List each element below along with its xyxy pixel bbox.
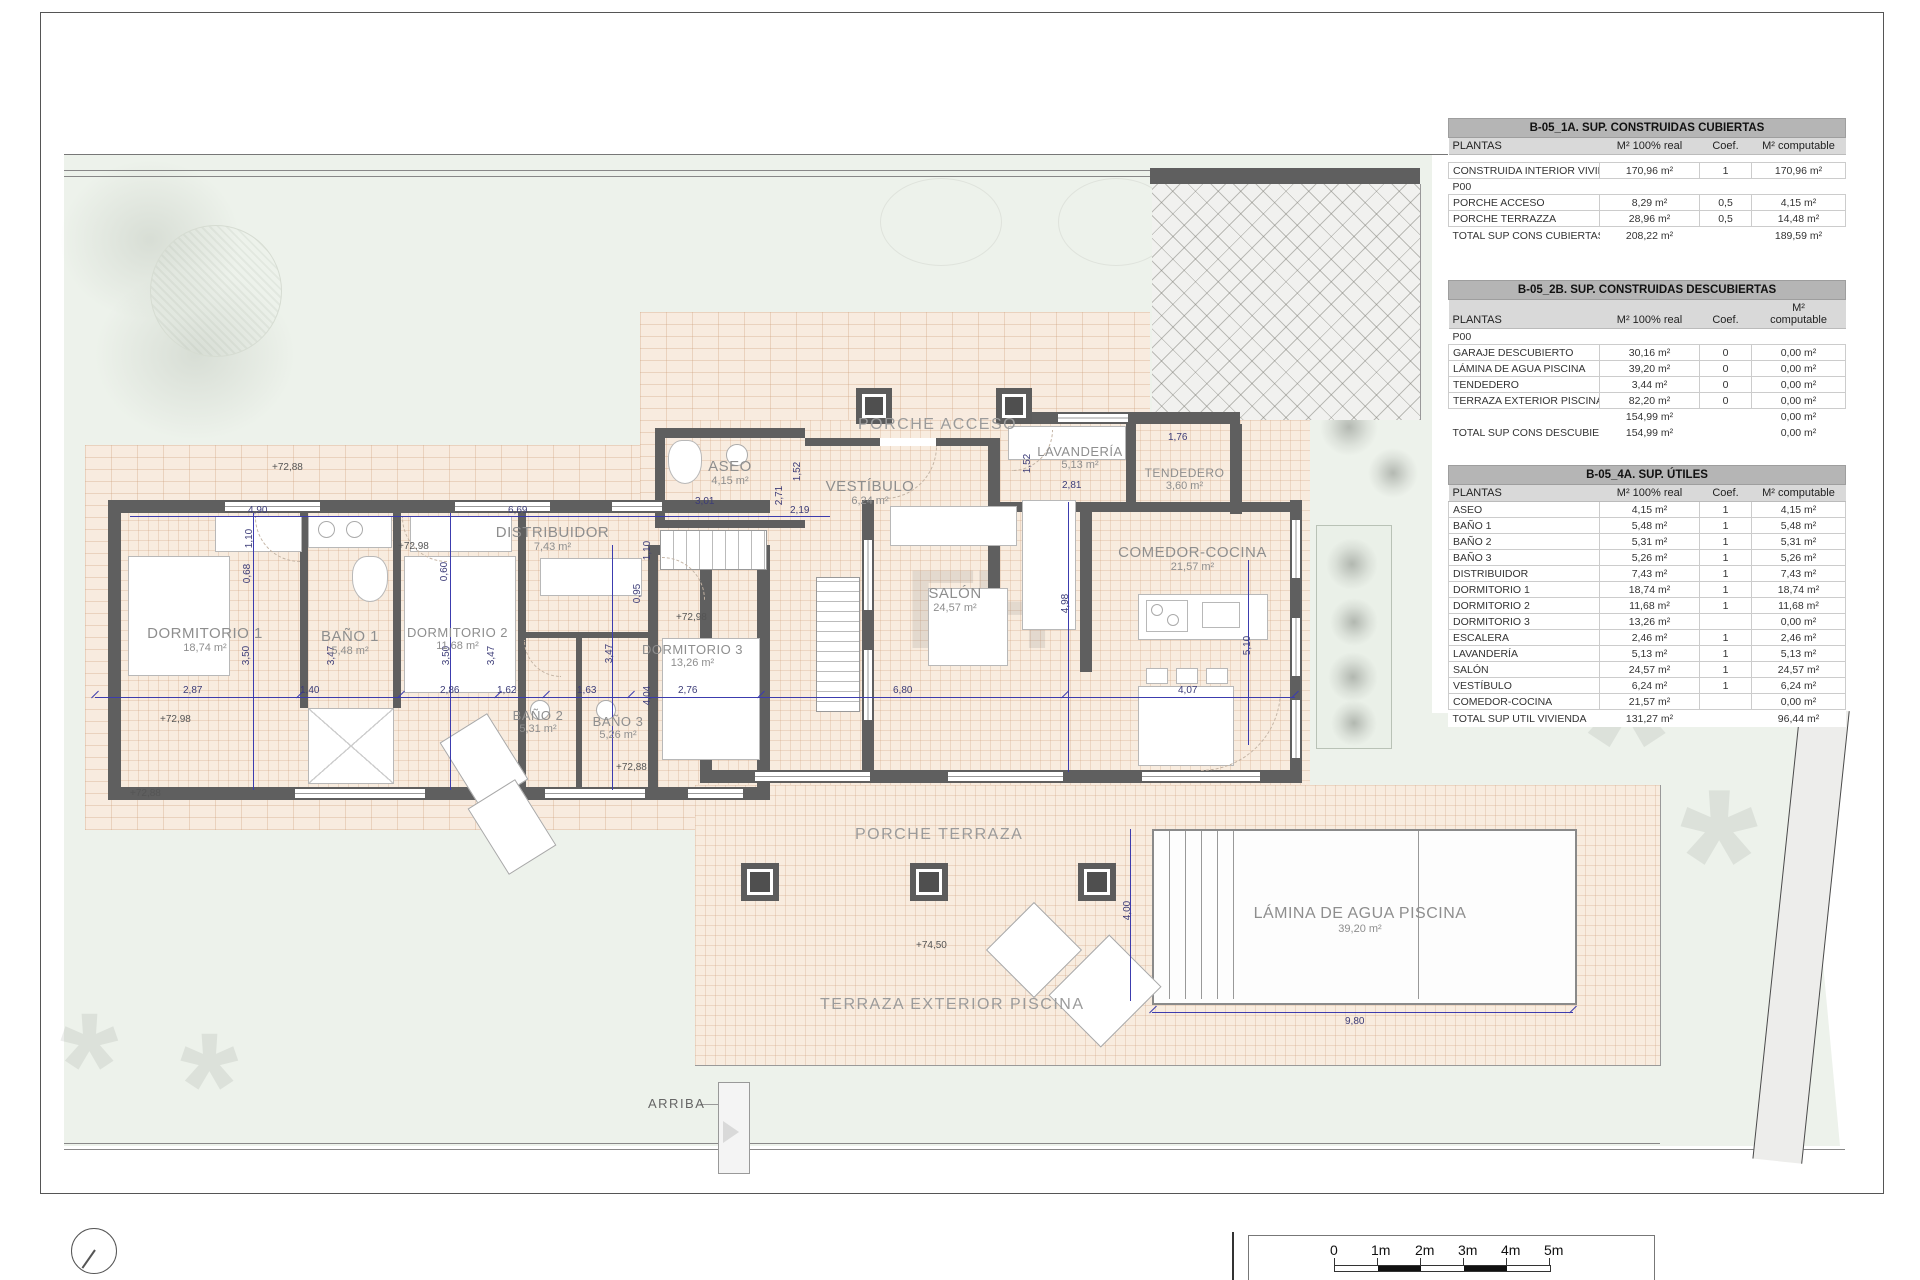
table-sup-construidas-cubiertas: B-05_1A. SUP. CONSTRUIDAS CUBIERTAS PLAN… [1448, 118, 1846, 244]
dim-label: 6,69 [508, 505, 527, 516]
scale-margin-line [1232, 1232, 1234, 1280]
wall [655, 520, 805, 528]
scale-segments [1334, 1265, 1551, 1272]
level-label: +72,88 [616, 762, 647, 773]
room-label-salon: SALÓN 24,57 m² [900, 585, 1010, 614]
dim-label: 2,81 [1062, 480, 1081, 491]
column [910, 863, 948, 901]
window [1142, 772, 1260, 781]
dimension-line [130, 516, 830, 517]
dim-label: 9,80 [1345, 1016, 1364, 1027]
garage-descubierto-hatch [1152, 184, 1421, 420]
floor-plan-sheet: * * * * * EH [0, 0, 1920, 1280]
zone-label-porche-terraza: PORCHE TERRAZA [855, 826, 1023, 844]
window [1292, 700, 1300, 758]
bed [128, 556, 230, 676]
level-label: +72,88 [272, 462, 303, 473]
zone-label-porche-acceso: PORCHE ACCESO [858, 416, 1017, 434]
scale-tick-label: 2m [1415, 1242, 1434, 1258]
kitchen-sink [1202, 602, 1240, 628]
scale-segment-black [1464, 1266, 1507, 1271]
window [225, 502, 320, 511]
dim-label: 1,10 [244, 529, 255, 548]
pool-label: LÁMINA DE AGUA PISCINA 39,20 m² [1210, 905, 1510, 935]
room-label-dormitorio-2: DORMITORIO 2 11,68 m² [395, 625, 520, 652]
dim-label: 4,07 [1178, 685, 1197, 696]
wall [108, 500, 770, 513]
chair [1176, 668, 1198, 684]
entrance-door-gap [880, 438, 936, 446]
room-label-dormitorio-1: DORMITORIO 1 18,74 m² [120, 625, 290, 654]
wall [648, 545, 658, 795]
arriba-ramp [718, 1082, 750, 1174]
dim-label: 2,86 [440, 685, 459, 696]
scale-segment-black [1378, 1266, 1421, 1271]
room-label-vestibulo: VESTÍBULO 6,24 m² [805, 478, 935, 507]
dim-label: 0,68 [242, 564, 253, 583]
sofa [890, 506, 1017, 546]
window [1292, 520, 1300, 578]
room-label-lavanderia: LAVANDERÍA 5,13 m² [1018, 444, 1142, 471]
dimension-line [1152, 1012, 1573, 1013]
wall [655, 428, 805, 438]
zone-label-arriba: ARRIBA [648, 1096, 705, 1111]
dim-label: 5,10 [1242, 636, 1253, 655]
level-label: +72,98 [676, 612, 707, 623]
toilet-icon [352, 556, 388, 602]
window [755, 772, 870, 781]
areas-table: PLANTASM² 100% realCoef.M² computableCON… [1448, 138, 1846, 244]
dim-label: 3,01 [695, 496, 714, 507]
level-label: +72,98 [160, 714, 191, 725]
chair [1206, 668, 1228, 684]
table-title: B-05_1A. SUP. CONSTRUIDAS CUBIERTAS [1448, 118, 1846, 138]
areas-table: PLANTASM² 100% realCoef.M² computableP00… [1448, 300, 1846, 441]
dim-label: 4,90 [248, 505, 267, 516]
areas-table: PLANTASM² 100% realCoef.M² computableASE… [1448, 485, 1846, 727]
dim-label: 1,63 [577, 685, 596, 696]
tree-icon [1330, 598, 1378, 646]
tree-icon [1326, 538, 1378, 590]
dim-label: 1,52 [792, 462, 803, 481]
room-label-bano-2: BAÑO 2 5,31 m² [498, 708, 578, 735]
room-label-comedor-cocina: COMEDOR-COCINA 21,57 m² [1100, 544, 1285, 573]
dim-label: 2,76 [678, 685, 697, 696]
sink-icon [318, 521, 335, 538]
tree-icon [880, 178, 1002, 266]
dim-label: 1,62 [497, 685, 516, 696]
dimension-line [1068, 502, 1069, 772]
scale-tick-label: 3m [1458, 1242, 1477, 1258]
room-label-tendedero: TENDEDERO 3,60 m² [1132, 466, 1237, 492]
wall [1150, 168, 1420, 184]
scale-tick-label: 1m [1371, 1242, 1390, 1258]
dim-label: 1,76 [1168, 432, 1187, 443]
window [1058, 414, 1128, 422]
window [295, 789, 425, 798]
room-label-distribuidor: DISTRIBUIDOR 7,43 m² [470, 524, 635, 553]
window [948, 772, 1063, 781]
room-label-aseo: ASEO 4,15 m² [685, 458, 775, 487]
dim-label: 4,00 [1122, 901, 1133, 920]
window [1292, 618, 1300, 676]
tree-icon [1368, 448, 1418, 498]
scale-tick-label: 5m [1544, 1242, 1563, 1258]
scale-tick-label: 4m [1501, 1242, 1520, 1258]
scale-tick-label: 0 [1330, 1242, 1338, 1258]
wall [518, 513, 526, 795]
fence-bottom-line1 [64, 1143, 1660, 1144]
wardrobe [540, 558, 642, 596]
dim-label: 0,95 [632, 584, 643, 603]
dimension-line [95, 697, 1295, 698]
level-label: +72,98 [398, 541, 429, 552]
window [688, 789, 743, 798]
palm-tree-icon: * [60, 990, 118, 1140]
table-sup-utiles: B-05_4A. SUP. ÚTILES PLANTASM² 100% real… [1448, 465, 1846, 727]
zone-label-terraza-exterior: TERRAZA EXTERIOR PISCINA [820, 996, 1084, 1014]
wall [1080, 502, 1092, 672]
dim-label: 1,40 [300, 685, 319, 696]
palm-tree-icon: * [1680, 760, 1758, 960]
dim-label: 2,87 [183, 685, 202, 696]
dim-label: 0,60 [439, 562, 450, 581]
table-title: B-05_4A. SUP. ÚTILES [1448, 465, 1846, 485]
room-label-bano-3: BAÑO 3 5,26 m² [578, 714, 658, 741]
dim-label: 4,04 [642, 686, 653, 705]
tree-icon [1328, 652, 1378, 702]
palm-tree-icon: * [180, 1010, 238, 1160]
level-label: +72,88 [130, 788, 161, 799]
column [741, 863, 779, 901]
dim-label: 6,80 [893, 685, 912, 696]
shower [308, 708, 394, 784]
wall [518, 632, 656, 638]
table-title: B-05_2B. SUP. CONSTRUIDAS DESCUBIERTAS [1448, 280, 1846, 300]
burner-icon [1167, 614, 1179, 626]
window [612, 502, 662, 511]
tree-icon [1331, 700, 1377, 746]
wall [655, 428, 665, 528]
table-sup-construidas-descubiertas: B-05_2B. SUP. CONSTRUIDAS DESCUBIERTAS P… [1448, 280, 1846, 441]
wall [108, 787, 770, 800]
dimension-line [612, 545, 613, 790]
sink-icon [346, 521, 363, 538]
window [455, 502, 550, 511]
room-label-bano-1: BAÑO 1 5,48 m² [300, 628, 400, 657]
dim-label: 2,71 [774, 486, 785, 505]
column [1078, 863, 1116, 901]
dim-label: 1,10 [642, 541, 653, 560]
window [864, 650, 872, 720]
level-label: +74,50 [916, 940, 947, 951]
scale-bar: 0 1m 2m 3m 4m 5m [1248, 1235, 1655, 1280]
window [545, 789, 645, 798]
dim-label: 3,47 [604, 644, 615, 663]
room-label-dormitorio-3: DORMITORIO 3 13,26 m² [620, 642, 765, 669]
tree-icon [150, 225, 282, 357]
window [864, 540, 872, 610]
burner-icon [1151, 604, 1163, 616]
escalera-stairs [816, 577, 860, 712]
chair [1146, 668, 1168, 684]
dim-label: 4,98 [1060, 594, 1071, 613]
